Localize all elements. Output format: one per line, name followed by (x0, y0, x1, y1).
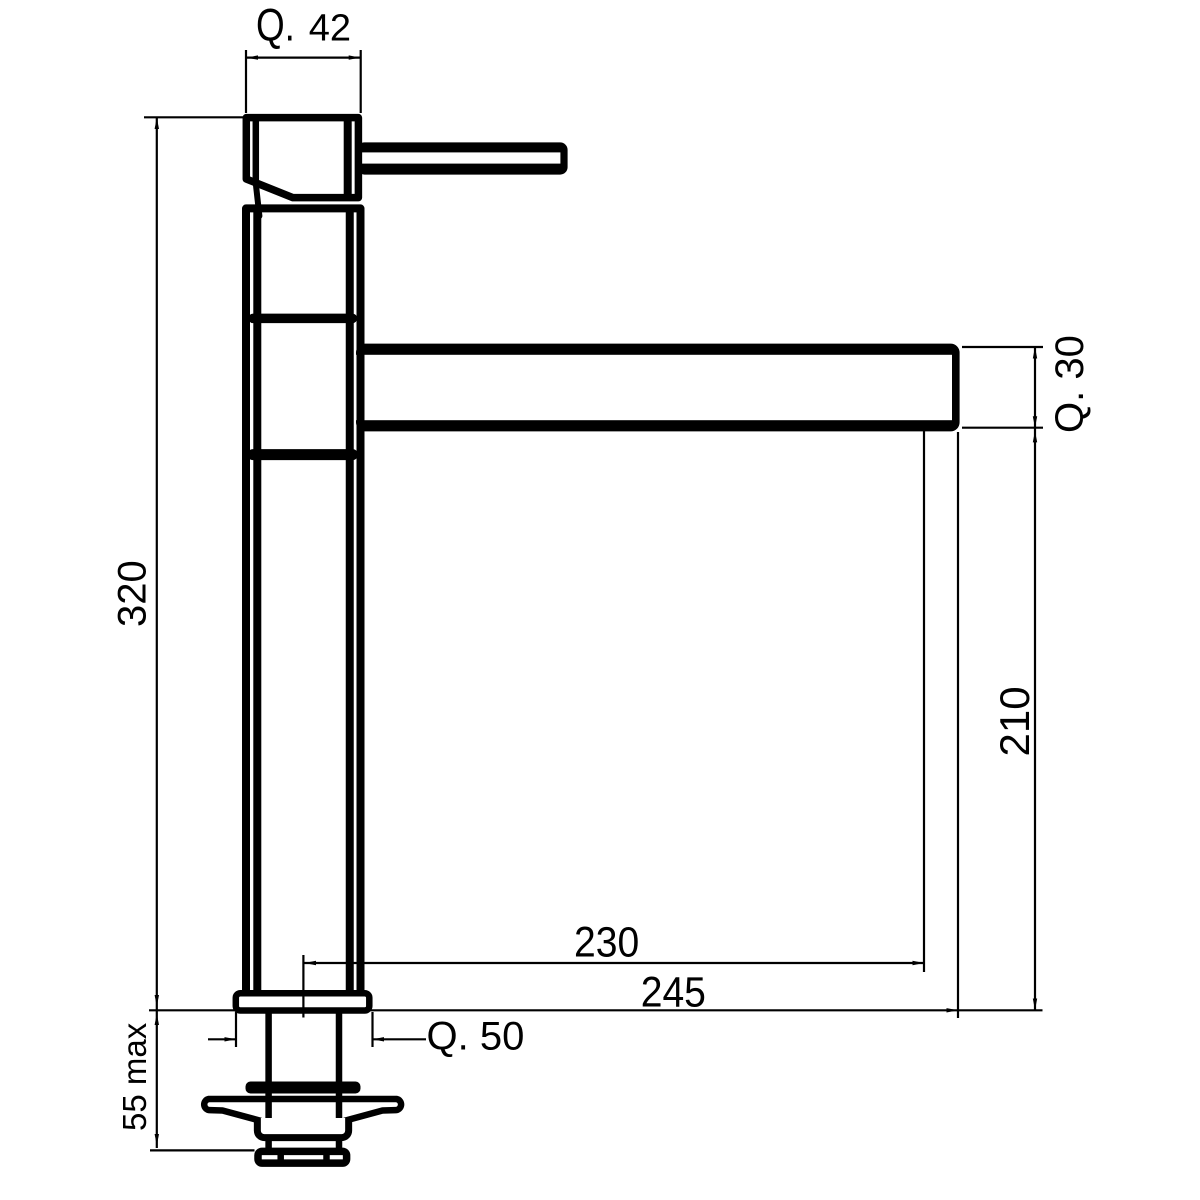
svg-text:Q. 50: Q. 50 (427, 1015, 525, 1059)
svg-text:Q.: Q. (256, 0, 295, 50)
svg-text:230: 230 (574, 918, 639, 966)
svg-text:245: 245 (641, 968, 706, 1016)
svg-text:Q. 30: Q. 30 (1048, 335, 1092, 433)
svg-text:42: 42 (309, 8, 351, 50)
svg-text:320: 320 (110, 560, 154, 627)
svg-text:55 max: 55 max (116, 1022, 153, 1131)
svg-text:210: 210 (991, 686, 1038, 756)
